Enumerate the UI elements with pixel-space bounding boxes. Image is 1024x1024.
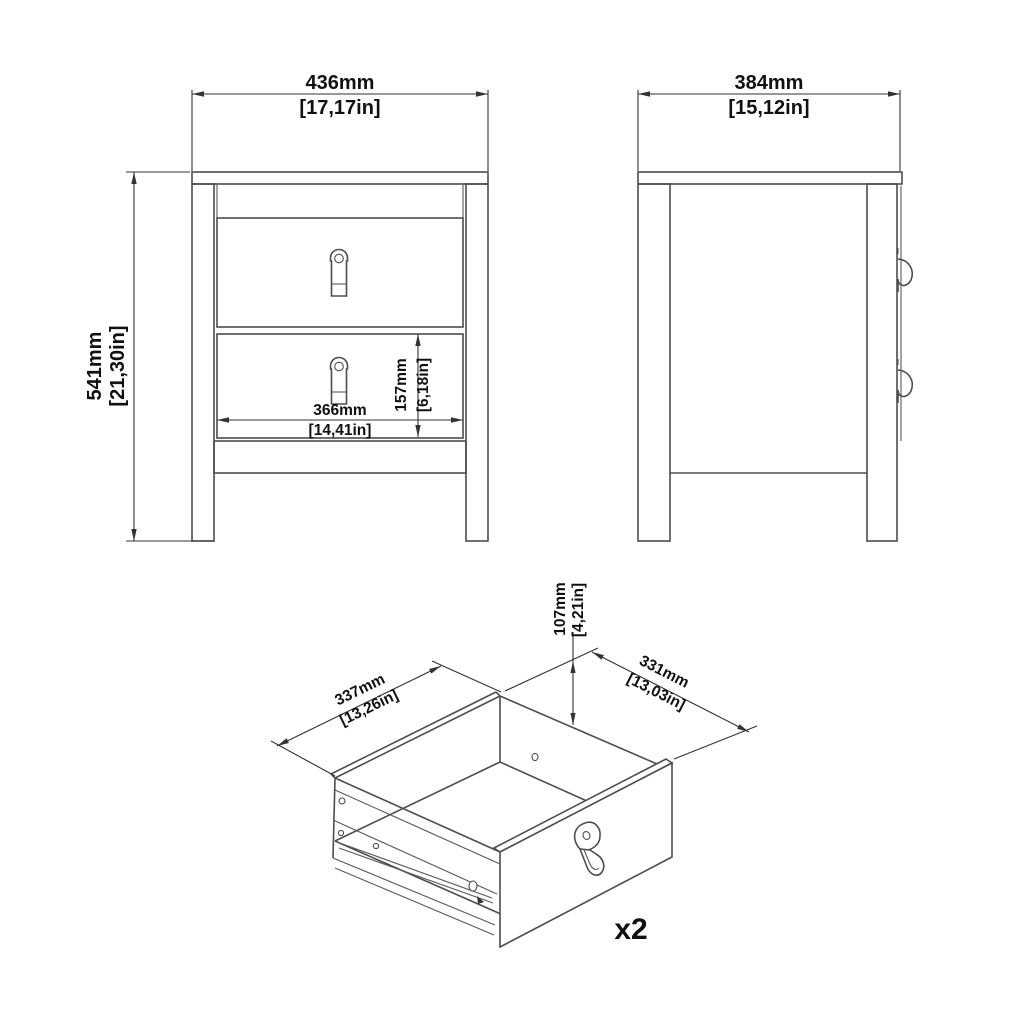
handle-screw-hole-icon xyxy=(335,254,344,263)
rail-lower-line xyxy=(335,868,494,935)
arrowhead-icon xyxy=(451,417,463,422)
side-handle-1 xyxy=(898,248,912,292)
front-height-dimension: 541mm [21,30in] xyxy=(84,172,214,541)
screw-hole-icon xyxy=(339,798,345,804)
arrowhead-icon xyxy=(192,91,204,96)
arrowhead-icon xyxy=(131,172,136,184)
furniture-dimension-diagram: 436mm [17,17in] 541mm [21,30in] 366mm [1… xyxy=(0,0,1024,1024)
drawer-1-handle xyxy=(331,250,348,297)
drawer-isometric-view: x2 xyxy=(331,692,672,947)
front-width-dimension: 436mm [17,17in] xyxy=(192,72,488,171)
drawer-quantity-label: x2 xyxy=(614,913,647,946)
side-top-board xyxy=(638,172,902,184)
screw-hole-icon xyxy=(532,753,538,760)
arrowhead-icon xyxy=(888,91,900,96)
screw-hole-icon xyxy=(338,830,343,835)
drawer-front-height-dimension: 157mm [6,18in] xyxy=(393,334,432,437)
arrowhead-icon xyxy=(415,334,420,346)
side-depth-in-label: [15,12in] xyxy=(728,97,809,119)
right-wall-top-edge xyxy=(500,696,664,767)
arrowhead-icon xyxy=(217,417,229,422)
side-back-leg xyxy=(638,184,670,541)
drawer-height-in-label: [6,18in] xyxy=(415,358,432,412)
arrowhead-icon xyxy=(476,91,488,96)
side-depth-mm-label: 384mm xyxy=(735,72,804,94)
arrowhead-icon xyxy=(737,724,749,732)
iso-height-mm-label: 107mm xyxy=(552,582,569,635)
left-wall-top-edge xyxy=(335,778,500,852)
front-left-leg xyxy=(192,184,214,541)
side-front-leg xyxy=(867,184,897,541)
arrowhead-icon xyxy=(638,91,650,96)
side-view xyxy=(638,172,912,541)
front-top-board xyxy=(192,172,488,184)
drawer-width-in-label: [14,41in] xyxy=(309,422,372,439)
back-wall-corner xyxy=(496,692,500,696)
front-width-mm-label: 436mm xyxy=(306,72,375,94)
arrowhead-icon xyxy=(570,661,575,673)
drawer-width-337-dimension: 337mm [13,26in] xyxy=(271,661,501,776)
left-end-edge xyxy=(333,778,335,858)
drawer-2-handle xyxy=(331,358,348,405)
drawer-height-mm-label: 157mm xyxy=(393,358,410,411)
drawer-width-mm-label: 366mm xyxy=(313,402,366,419)
arrowhead-icon xyxy=(277,738,289,746)
arrowhead-icon xyxy=(131,529,136,541)
arrowhead-icon xyxy=(592,652,604,660)
side-depth-dimension: 384mm [15,12in] xyxy=(638,72,900,171)
arrowhead-icon xyxy=(429,666,441,674)
front-width-in-label: [17,17in] xyxy=(299,97,380,119)
front-right-leg xyxy=(466,184,488,541)
screw-hole-icon xyxy=(373,843,378,848)
rail-slot-line xyxy=(339,848,493,903)
handle-screw-hole-icon xyxy=(335,362,344,371)
front-height-in-label: [21,30in] xyxy=(107,325,129,406)
rail-bottom-line xyxy=(333,858,495,925)
arrowhead-icon xyxy=(415,425,420,437)
front-view xyxy=(192,172,488,541)
runner-wheel-icon xyxy=(469,881,477,891)
runner-arrow-icon xyxy=(477,896,484,904)
front-bottom-rail xyxy=(214,441,466,473)
iso-height-in-label: [4,21in] xyxy=(570,583,587,637)
drawer-height-107-dimension: 107mm [4,21in] xyxy=(552,582,587,725)
side-handle-2 xyxy=(898,359,912,403)
arrowhead-icon xyxy=(570,713,575,725)
drawer-depth-331-dimension: 331mm [13,03in] xyxy=(505,648,757,759)
front-height-mm-label: 541mm xyxy=(84,332,106,401)
technical-drawing-page: 436mm [17,17in] 541mm [21,30in] 366mm [1… xyxy=(0,0,1024,1024)
